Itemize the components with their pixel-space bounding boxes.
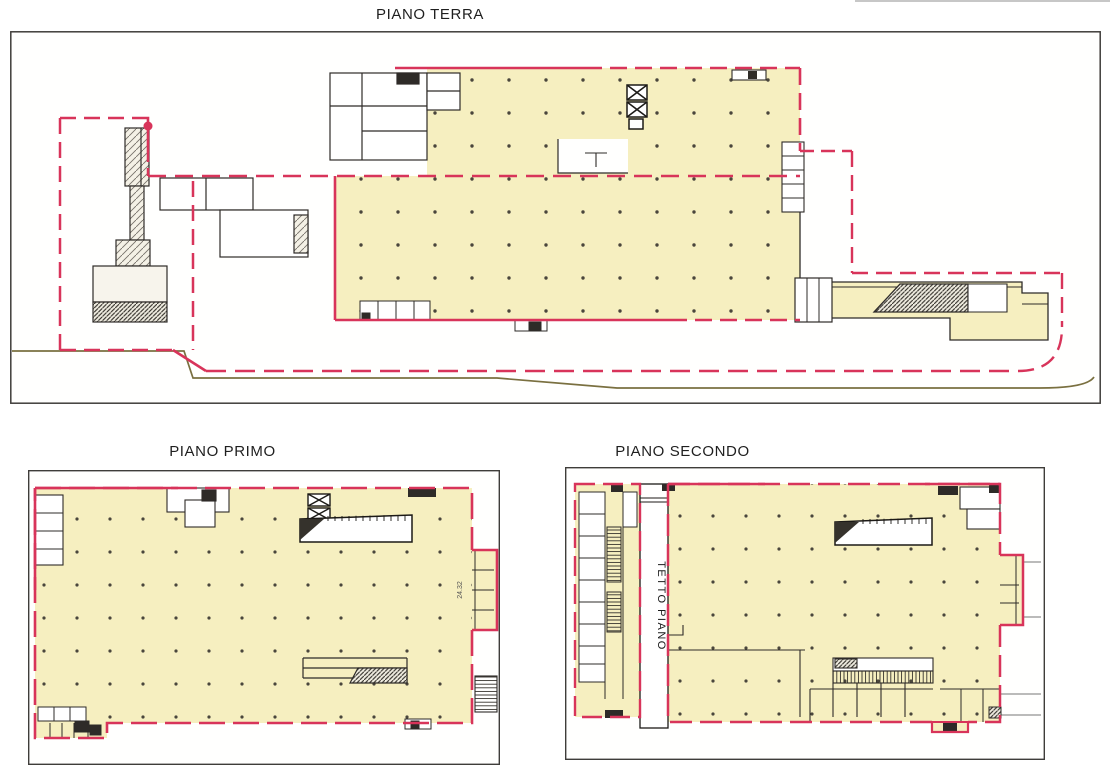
scan-artifact-line bbox=[855, 0, 1110, 2]
bottom-protrusion bbox=[932, 722, 968, 732]
stair-icon bbox=[607, 527, 621, 582]
first-floor-plan: 24.32 bbox=[28, 470, 500, 765]
scanned-floor-plan-sheet: PIANO TERRA PIANO PRIMO PIANO SECONDO bbox=[0, 0, 1110, 773]
column-grid-dots bbox=[668, 484, 1000, 722]
rooftop-access-rooms bbox=[732, 70, 766, 80]
dark-service-block bbox=[397, 73, 419, 84]
ramp-icon bbox=[833, 671, 933, 683]
ground-floor-title: PIANO TERRA bbox=[355, 6, 505, 23]
survey-point-dot bbox=[144, 122, 153, 131]
dimension-label: 24.32 bbox=[457, 581, 464, 599]
first-floor-fill bbox=[35, 488, 497, 738]
stair-icon bbox=[475, 676, 497, 712]
foundation-hatch bbox=[93, 302, 167, 322]
dark-bar bbox=[408, 488, 436, 497]
flat-roof-label: TETTO PIANO bbox=[655, 561, 667, 651]
flat-roof-strip: TETTO PIANO bbox=[640, 484, 668, 728]
external-stair bbox=[475, 676, 497, 712]
hall-notch bbox=[558, 139, 628, 173]
ground-floor-plan bbox=[10, 31, 1101, 404]
first-floor-title: PIANO PRIMO bbox=[140, 443, 305, 460]
dark-service-block bbox=[202, 490, 216, 501]
second-floor-plan: TETTO PIANO bbox=[565, 467, 1045, 760]
ramp-void bbox=[835, 518, 932, 545]
ramp-icon bbox=[350, 668, 407, 683]
stair-icon bbox=[607, 592, 621, 632]
dark-bar bbox=[938, 486, 958, 495]
ramp-void bbox=[300, 515, 412, 542]
second-floor-title: PIANO SECONDO bbox=[595, 443, 770, 460]
stair-icon bbox=[294, 215, 308, 253]
